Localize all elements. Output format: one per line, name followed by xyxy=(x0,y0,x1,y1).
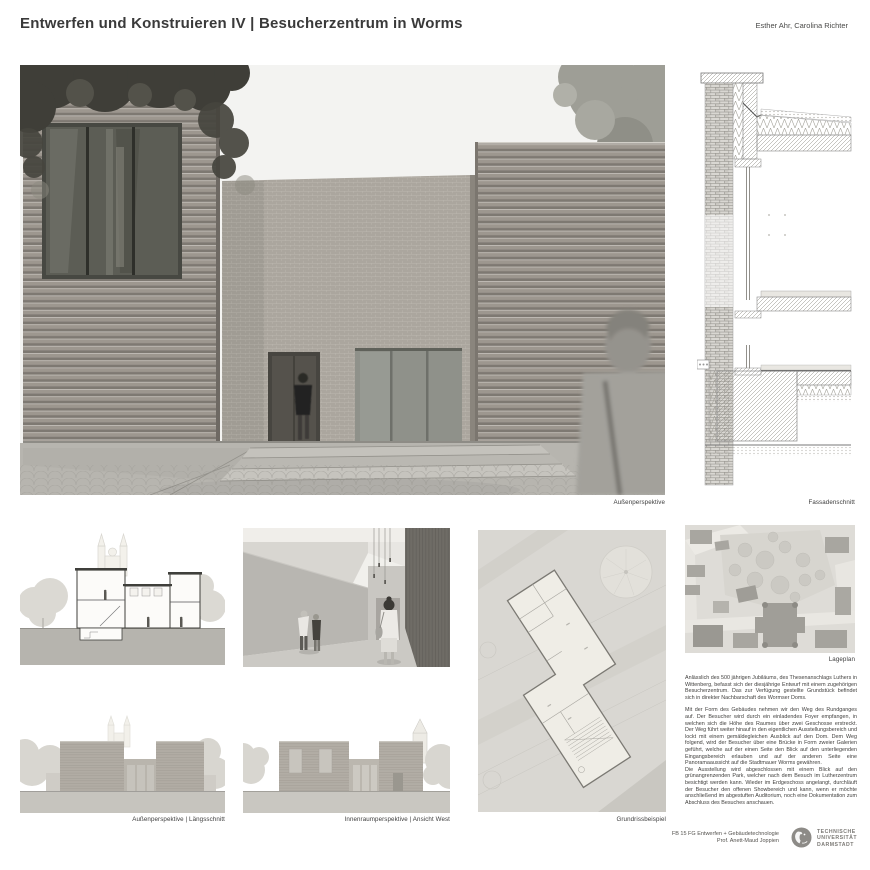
project-description: Anlässlich des 500 jährigen Jubiläums, d… xyxy=(685,675,857,806)
footer-professor: Prof. Anett-Maud Joppien xyxy=(658,838,779,845)
small-exterior-perspective-figure xyxy=(20,713,225,813)
facade-figure-caption: Fassadenschnitt xyxy=(697,499,855,506)
footer-credits: FB 15 FG Entwerfen + Gebäudetechnologie … xyxy=(658,831,779,844)
description-paragraph-2: Mit der Form des Gebäudes nehmen wir den… xyxy=(685,707,857,766)
facade-section-figure xyxy=(697,65,855,495)
description-paragraph-3: Die Ausstellung wird abgeschlossen mit e… xyxy=(685,767,857,807)
longitudinal-section-figure xyxy=(20,528,225,665)
center-column-caption: Innenraumperspektive | Ansicht West xyxy=(243,816,450,823)
footer-department: FB 15 FG Entwerfen + Gebäudetechnologie xyxy=(658,831,779,838)
logo-line-3: DARMSTADT xyxy=(817,842,857,848)
floor-plan-caption: Grundrissbeispiel xyxy=(478,816,666,823)
interior-perspective-figure xyxy=(243,528,450,667)
main-figure-caption: Außenperspektive xyxy=(20,499,665,506)
description-paragraph-1: Anlässlich des 500 jährigen Jubiläums, d… xyxy=(685,675,857,701)
presentation-board: Entwerfen und Konstruieren IV | Besucher… xyxy=(0,0,870,870)
left-column-caption: Außenperspektive | Längsschnitt xyxy=(20,816,225,823)
floor-plan-figure xyxy=(478,530,666,812)
tu-darmstadt-logo-text: TECHNISCHE UNIVERSITÄT DARMSTADT xyxy=(817,829,857,848)
athene-head-icon xyxy=(791,827,812,853)
authors: Esther Ahr, Carolina Richter xyxy=(648,21,848,30)
site-plan-figure xyxy=(685,525,855,653)
tu-darmstadt-logo: TECHNISCHE UNIVERSITÄT DARMSTADT xyxy=(791,823,866,859)
page-title: Entwerfen und Konstruieren IV | Besucher… xyxy=(20,15,463,32)
west-elevation-figure xyxy=(243,715,450,813)
main-exterior-perspective-figure xyxy=(20,65,665,495)
logo-line-2: UNIVERSITÄT xyxy=(817,835,857,841)
site-plan-caption: Lageplan xyxy=(685,656,855,663)
